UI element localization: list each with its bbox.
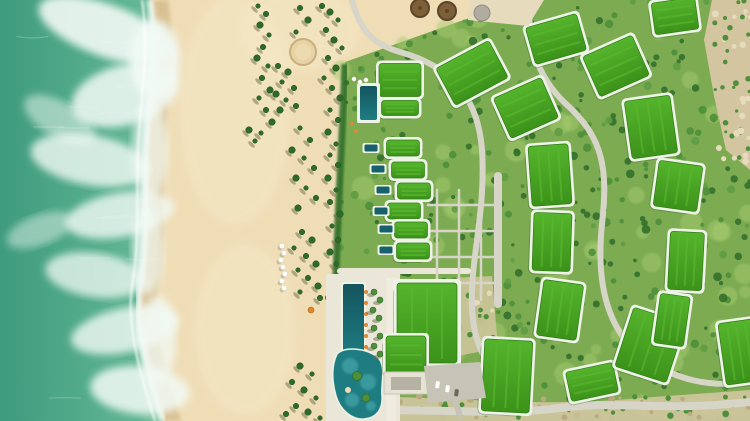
white-beach-umbrella: [278, 257, 283, 262]
green-roof-building: [477, 336, 536, 418]
tree: [633, 259, 636, 262]
green-roof-building: [393, 240, 433, 263]
tree: [520, 327, 528, 335]
tree: [351, 191, 359, 199]
palm-tree: [335, 117, 341, 123]
tree: [551, 345, 555, 349]
tree: [605, 20, 613, 28]
palm-tree: [277, 107, 284, 114]
tree: [597, 187, 601, 191]
tree: [735, 219, 741, 225]
tree: [358, 66, 363, 71]
deck-palm: [371, 343, 377, 349]
scrub-dot: [562, 414, 568, 420]
palm-tree: [317, 295, 323, 301]
palm-tree: [295, 205, 302, 212]
scrub-dot: [722, 35, 728, 41]
palm-tree: [337, 211, 344, 218]
tree: [375, 220, 379, 224]
tree: [591, 223, 596, 228]
palm-tree: [298, 126, 303, 131]
tree: [615, 177, 620, 182]
deck-palm: [370, 307, 376, 313]
palm-tree: [257, 96, 262, 101]
white-beach-umbrella: [282, 271, 287, 276]
palm-tree: [283, 411, 289, 417]
palm-tree: [328, 153, 333, 158]
white-parasol: [358, 80, 362, 84]
tree: [526, 62, 531, 67]
palm-tree: [337, 95, 344, 102]
scrub-dot: [688, 412, 692, 416]
deck-palm: [371, 289, 377, 295]
scrub-dot: [732, 44, 737, 49]
scrub-dot: [736, 0, 740, 4]
orange-beach-umbrella: [308, 307, 314, 313]
lawn-patch: [642, 253, 662, 273]
scrub-dot: [739, 113, 745, 119]
tree: [602, 122, 606, 126]
scrub-dot: [611, 410, 615, 414]
parking-lot: [424, 362, 486, 403]
pool-island: [353, 372, 362, 381]
scrub-dot: [725, 49, 729, 53]
palm-tree: [289, 147, 296, 154]
tree: [590, 187, 595, 192]
scrub-dot: [697, 415, 702, 420]
villa-plunge-pool: [365, 145, 378, 152]
scrub-dot: [667, 412, 673, 418]
tree: [449, 151, 456, 158]
tree: [700, 344, 708, 352]
tree: [584, 211, 590, 217]
palm-tree: [246, 127, 253, 134]
palm-tree: [296, 268, 301, 273]
palm-tree: [323, 27, 329, 33]
white-beach-umbrella: [281, 285, 286, 290]
scrub-dot: [714, 88, 717, 91]
scrub-dot: [712, 10, 719, 17]
scrub-dot: [724, 130, 727, 133]
tree: [541, 382, 548, 389]
palm-tree: [310, 372, 315, 377]
palm-tree: [303, 253, 309, 259]
villa-plunge-pool: [377, 187, 390, 194]
palm-tree: [307, 137, 313, 143]
scrub-dot: [743, 152, 749, 158]
tree: [735, 253, 743, 261]
canopy-shade: [391, 377, 421, 390]
tree: [648, 293, 655, 300]
lawn-patch: [435, 144, 451, 160]
villa-plunge-pool: [375, 208, 388, 215]
scrub-dot: [723, 395, 728, 400]
scrub-dot: [722, 410, 729, 417]
tree: [520, 184, 524, 188]
tree: [611, 278, 617, 284]
tree: [429, 213, 433, 217]
scrub-dot: [478, 308, 483, 313]
tree: [620, 219, 624, 223]
palm-tree: [325, 55, 331, 61]
aerial-beach-resort-photo: [0, 0, 750, 421]
tree: [446, 113, 452, 119]
scrub-dot: [733, 80, 739, 86]
tree: [710, 332, 715, 337]
tree: [610, 113, 616, 119]
tree: [588, 262, 591, 265]
tree: [578, 355, 584, 361]
lawn-patch: [591, 344, 601, 354]
palm-tree: [289, 379, 295, 385]
scrub-dot: [732, 156, 737, 161]
green-roof-building: [391, 219, 431, 242]
palm-tree: [331, 37, 338, 44]
tree: [509, 301, 515, 307]
palm-tree: [336, 18, 341, 23]
palm-tree: [253, 139, 258, 144]
hut-peak: [445, 9, 449, 13]
tree: [513, 149, 520, 156]
tree: [364, 248, 370, 254]
tree: [566, 354, 572, 360]
tree: [725, 272, 731, 278]
palm-tree: [280, 80, 285, 85]
tree: [432, 30, 437, 35]
white-beach-umbrella: [279, 278, 284, 283]
tree: [462, 19, 466, 23]
palm-tree: [319, 3, 325, 9]
palm-tree: [305, 17, 312, 24]
palm-tree: [329, 85, 335, 91]
palm-tree: [256, 4, 261, 9]
white-beach-umbrella: [281, 250, 286, 255]
palm-tree: [318, 416, 323, 421]
palm-tree: [259, 75, 265, 81]
green-roof-building: [648, 157, 706, 217]
scrub-dot: [541, 396, 546, 401]
green-roof-building: [388, 159, 428, 182]
deck-palm: [377, 297, 383, 303]
scrub-dot: [618, 396, 621, 399]
tree: [505, 278, 511, 284]
palm-tree: [257, 22, 264, 29]
tree: [725, 166, 730, 171]
palm-tree: [259, 131, 264, 136]
green-roof-building: [394, 180, 434, 203]
tree: [701, 198, 706, 203]
tree: [486, 150, 492, 156]
tree: [619, 197, 624, 202]
villa-plunge-pool: [380, 226, 393, 233]
tree: [719, 251, 726, 258]
tree: [634, 271, 640, 277]
tree: [583, 144, 591, 152]
palm-tree: [298, 290, 303, 295]
wave-streak: [49, 398, 81, 399]
tree: [609, 239, 615, 245]
scrub-dot: [737, 155, 742, 160]
tree: [622, 295, 627, 300]
palm-tree: [293, 403, 299, 409]
tree: [469, 199, 475, 205]
scrub-dot: [484, 314, 489, 319]
scrub-dot: [721, 156, 726, 161]
tree: [653, 54, 659, 60]
tree: [496, 310, 500, 314]
tree: [525, 300, 529, 304]
tree: [719, 281, 723, 285]
tree: [671, 49, 677, 55]
palm-tree: [327, 249, 334, 256]
scrub-dot: [665, 395, 670, 400]
palm-tree: [291, 85, 297, 91]
palm-tree: [334, 262, 339, 267]
green-roof-building: [663, 228, 707, 295]
palm-tree: [299, 229, 305, 235]
scrub-dot: [738, 127, 745, 134]
palm-tree: [284, 98, 289, 103]
sand-islet: [345, 387, 351, 393]
palm-tree: [327, 199, 333, 205]
tree: [353, 96, 358, 101]
palm-tree: [292, 246, 297, 251]
green-roof-building: [383, 137, 423, 160]
tree: [686, 127, 694, 135]
shallow-water: [366, 401, 376, 411]
upper-villa-pool: [360, 86, 377, 120]
tree: [691, 340, 699, 348]
tree: [741, 234, 747, 240]
palm-tree: [275, 63, 281, 69]
scrub-dot: [743, 396, 746, 399]
villa-plunge-pool: [380, 247, 393, 254]
hut-peak: [418, 6, 422, 10]
scrub-dot: [723, 16, 727, 20]
tree: [712, 118, 716, 122]
scrub-dot: [739, 42, 745, 48]
scrub-dot: [720, 85, 725, 90]
deck-palm: [371, 325, 377, 331]
tree: [588, 249, 595, 256]
white-beach-umbrella: [280, 264, 285, 269]
tree: [673, 63, 681, 71]
deck-palm: [377, 333, 383, 339]
tree: [552, 77, 556, 81]
palm-tree: [269, 119, 276, 126]
white-parasol: [364, 78, 368, 82]
tree: [452, 205, 459, 212]
tree: [579, 99, 582, 102]
tree: [699, 106, 707, 114]
palm-tree: [335, 162, 341, 168]
ocean-layer: [0, 0, 192, 421]
scrub-dot: [632, 394, 637, 399]
palm-tree: [302, 156, 307, 161]
scrub-dot: [487, 291, 492, 296]
tree: [506, 35, 510, 39]
palm-tree: [305, 409, 312, 416]
scrub-dot: [595, 414, 599, 418]
scrub-dot: [727, 25, 732, 30]
palm-tree: [325, 175, 332, 182]
tree: [534, 277, 540, 283]
scrub-dot: [740, 96, 746, 102]
scrub-dot: [490, 309, 494, 313]
tree: [527, 322, 531, 326]
scrub-dot: [742, 158, 749, 165]
tree: [374, 52, 379, 57]
tree: [584, 165, 590, 171]
tree: [556, 62, 562, 68]
shallow-water: [345, 393, 359, 407]
tree: [719, 294, 728, 303]
scrub-dot: [712, 42, 717, 47]
palm-tree: [311, 165, 317, 171]
fire-circle-center: [295, 44, 311, 60]
palm-tree: [294, 30, 299, 35]
scrub-dot: [443, 401, 447, 405]
tree: [731, 175, 738, 182]
tree: [554, 128, 563, 137]
scrub-dot: [735, 109, 738, 112]
scrub-dot: [732, 14, 736, 18]
tree: [608, 261, 614, 267]
scrub-dot: [680, 397, 684, 401]
scrub-dot: [723, 120, 729, 126]
tree: [605, 117, 612, 124]
palm-tree: [335, 237, 341, 243]
white-beach-umbrella: [279, 243, 284, 248]
tree: [718, 217, 723, 222]
tree: [695, 129, 701, 135]
palm-tree: [260, 44, 266, 50]
palm-tree: [325, 129, 332, 136]
tree: [691, 137, 699, 145]
tree: [661, 86, 668, 93]
tree: [745, 224, 749, 228]
tree: [626, 169, 635, 178]
round-pavilion: [474, 5, 490, 21]
tree: [651, 61, 657, 67]
green-roof-building: [528, 209, 575, 276]
tree: [593, 300, 600, 307]
pool-island: [362, 394, 370, 402]
green-roof-building: [375, 61, 424, 101]
tree: [713, 272, 722, 281]
orange-lounger: [364, 290, 368, 294]
tree: [727, 185, 735, 193]
tree: [692, 84, 699, 91]
tree: [525, 136, 529, 140]
palm-tree: [267, 33, 272, 38]
tree: [515, 313, 521, 319]
tree: [511, 243, 514, 246]
villa-plunge-pool: [372, 166, 385, 173]
green-roof-building: [378, 98, 422, 120]
palm-tree: [313, 261, 320, 268]
tree: [679, 54, 685, 60]
tree: [578, 92, 584, 98]
palm-tree: [293, 175, 300, 182]
palm-tree: [322, 76, 327, 81]
tree: [406, 40, 413, 47]
tree: [521, 193, 527, 199]
tree: [704, 326, 707, 329]
white-parasol: [352, 77, 356, 81]
tree: [501, 28, 505, 32]
orange-lounger: [364, 323, 368, 327]
tree: [365, 202, 373, 210]
scrub-dot: [474, 415, 478, 419]
green-roof-building: [532, 276, 587, 345]
deck-palm: [376, 315, 382, 321]
palm-tree: [273, 91, 280, 98]
green-roof-building: [524, 140, 576, 210]
tree: [383, 177, 386, 180]
tree: [655, 219, 662, 226]
palm-tree: [314, 396, 319, 401]
tree: [643, 162, 649, 168]
tree: [621, 242, 626, 247]
scrub-dot: [467, 332, 473, 338]
scrub-dot: [723, 60, 728, 65]
tree: [592, 212, 600, 220]
palm-tree: [333, 65, 340, 72]
palm-tree: [297, 363, 304, 370]
palm-tree: [340, 46, 345, 51]
palm-tree: [266, 64, 271, 69]
tree: [466, 143, 472, 149]
palm-tree: [254, 55, 261, 62]
palm-tree: [313, 195, 319, 201]
tree: [644, 82, 652, 90]
palm-tree: [293, 103, 299, 109]
orange-lounger: [364, 301, 368, 305]
tree: [712, 372, 718, 378]
tree: [443, 162, 450, 169]
orange-lounger: [354, 129, 358, 133]
tree: [611, 12, 617, 18]
tree: [679, 39, 684, 44]
lawn-patch: [437, 19, 457, 39]
scrub-dot: [649, 410, 653, 414]
tree: [642, 225, 651, 234]
tree: [510, 258, 514, 262]
scrub-dot: [643, 395, 647, 399]
lawn-patch: [712, 223, 731, 242]
tree: [702, 188, 710, 196]
palm-tree: [328, 108, 333, 113]
palm-tree: [327, 9, 334, 16]
palm-tree: [309, 237, 316, 244]
palm-tree: [263, 107, 269, 113]
tree: [505, 211, 512, 218]
palm-tree: [315, 283, 322, 290]
tree: [503, 312, 511, 320]
scrub-dot: [740, 14, 745, 19]
orange-lounger: [350, 122, 354, 126]
tree: [644, 174, 648, 178]
palm-tree: [334, 188, 339, 193]
green-roof-building: [620, 92, 682, 164]
tree: [618, 306, 624, 312]
scrub-dot: [712, 20, 717, 25]
shallow-water: [360, 374, 376, 390]
palm-tree: [263, 11, 269, 17]
tree: [451, 195, 455, 199]
tree: [422, 35, 426, 39]
